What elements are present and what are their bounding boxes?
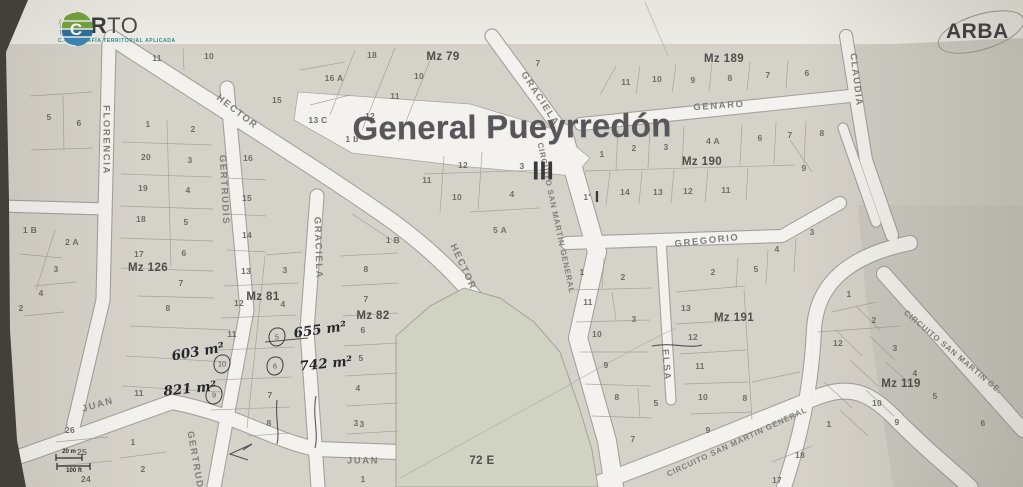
- map-title: General Pueyrredón: [352, 106, 671, 147]
- screenshot-root: FLORENCIAHECTORHECTORGERTRUDISGERTRUDISG…: [0, 0, 1023, 487]
- carto-logo: C CARTO CARTOGRAFÍA TERRITORIAL APLICADA: [58, 11, 176, 44]
- scale-bar-feet-label: 100 ft: [66, 468, 82, 474]
- cadastral-map-canvas: [0, 0, 1023, 487]
- cadastral-map-photo: FLORENCIAHECTORHECTORGERTRUDISGERTRUDISG…: [0, 0, 1023, 487]
- carto-globe-icon: C: [58, 11, 94, 47]
- arba-logo: ARBA: [938, 12, 1023, 52]
- scale-bar-meters-label: 20 m: [62, 449, 76, 455]
- arba-brand-text: ARBA: [946, 20, 1009, 44]
- svg-text:C: C: [70, 20, 82, 39]
